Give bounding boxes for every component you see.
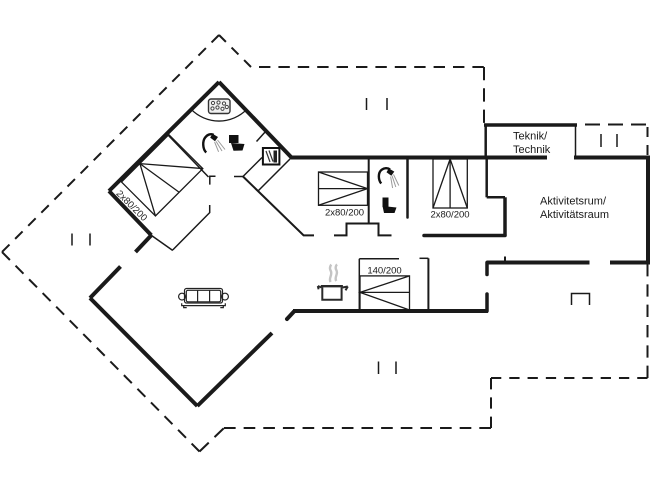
svg-text:Aktivitetsrum/: Aktivitetsrum/ <box>540 196 607 208</box>
svg-text:Aktivitätsraum: Aktivitätsraum <box>540 209 609 221</box>
svg-text:Technik: Technik <box>513 144 551 156</box>
svg-text:2x80/200: 2x80/200 <box>325 208 364 219</box>
svg-text:2x80/200: 2x80/200 <box>430 210 469 221</box>
svg-text:Teknik/: Teknik/ <box>513 131 548 143</box>
svg-text:140/200: 140/200 <box>367 265 401 276</box>
